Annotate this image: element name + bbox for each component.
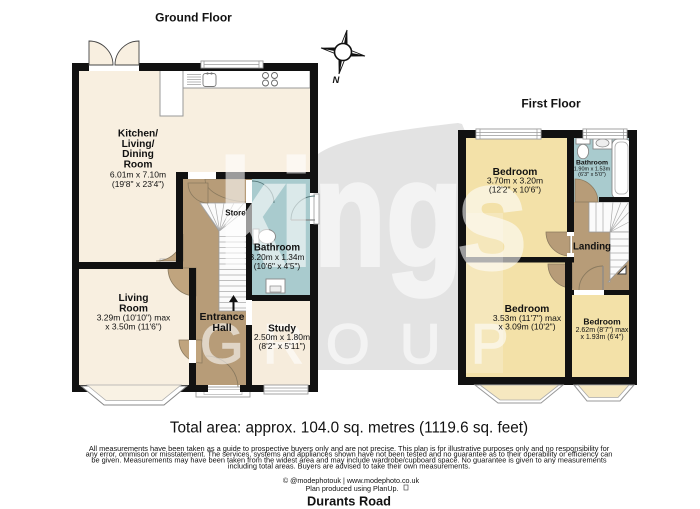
- svg-text:s: s: [457, 134, 527, 301]
- svg-text:Ground Floor: Ground Floor: [155, 11, 232, 25]
- svg-text:6.01m x 7.10m: 6.01m x 7.10m: [110, 170, 166, 180]
- svg-text:First Floor: First Floor: [521, 97, 581, 111]
- svg-text:(19'8" x 23'4"): (19'8" x 23'4"): [112, 179, 164, 189]
- svg-text:x 3.50m (11'6"): x 3.50m (11'6"): [105, 322, 162, 332]
- svg-text:i: i: [280, 129, 313, 297]
- svg-text:Living: Living: [119, 293, 149, 304]
- svg-text:g: g: [386, 131, 463, 298]
- svg-text:(6'3" x 5'0"): (6'3" x 5'0"): [578, 172, 606, 178]
- svg-text:Total area: approx. 104.0 sq.: Total area: approx. 104.0 sq. metres (11…: [170, 420, 528, 437]
- svg-text:Bedroom: Bedroom: [583, 317, 621, 327]
- svg-text:(8'2" x 5'11"): (8'2" x 5'11"): [259, 341, 306, 351]
- svg-text:O: O: [326, 312, 370, 375]
- svg-text:(12'2" x 10'6"): (12'2" x 10'6"): [489, 185, 541, 195]
- svg-text:N: N: [333, 75, 341, 86]
- svg-text:Landing: Landing: [573, 242, 611, 253]
- svg-text:x 1.93m (6'4"): x 1.93m (6'4"): [580, 334, 623, 341]
- svg-text:Kitchen/: Kitchen/: [118, 129, 158, 140]
- svg-text:Durants Road: Durants Road: [307, 494, 391, 509]
- svg-text:x 3.09m (10'2"): x 3.09m (10'2"): [498, 322, 555, 332]
- svg-text:Store: Store: [225, 209, 246, 218]
- svg-text:Hall: Hall: [212, 322, 231, 334]
- svg-text:including total areas. Buyers: including total areas. Buyers are advise…: [228, 462, 470, 471]
- svg-text:n: n: [314, 129, 385, 297]
- svg-text:U: U: [400, 312, 440, 375]
- svg-text:Bathroom: Bathroom: [576, 160, 608, 167]
- svg-text:(10'6" x 4'5"): (10'6" x 4'5"): [254, 261, 301, 271]
- svg-text:2.62m (8'7") max: 2.62m (8'7") max: [576, 327, 629, 334]
- svg-text:Plan produced using PlanUp.: Plan produced using PlanUp.: [305, 484, 398, 493]
